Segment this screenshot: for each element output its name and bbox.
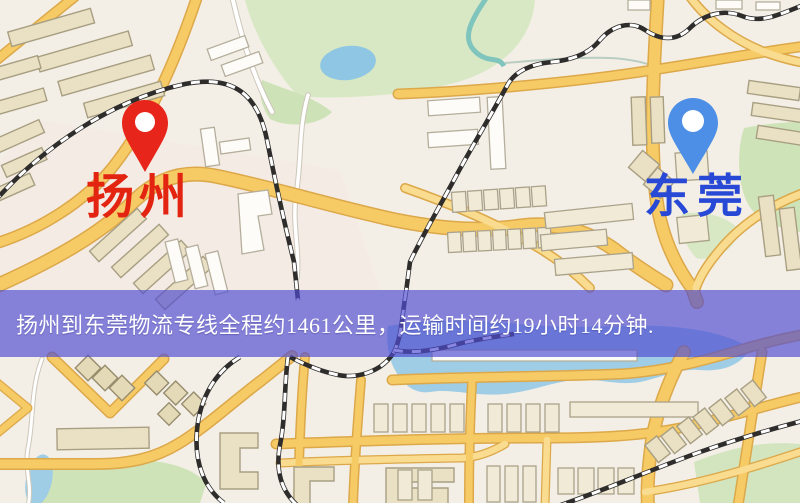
origin-pin-shape[interactable]: [122, 100, 168, 172]
destination-pin-icon[interactable]: [663, 94, 723, 178]
route-info-text: 扬州到东莞物流专线全程约1461公里，运输时间约19小时14分钟.: [0, 308, 654, 340]
destination-pin-shape[interactable]: [668, 98, 718, 174]
destination-city-label: 东莞: [644, 174, 750, 220]
origin-pin-icon[interactable]: [116, 96, 174, 176]
route-info-banner: 扬州到东莞物流专线全程约1461公里，运输时间约19小时14分钟.: [0, 290, 800, 357]
map-canvas[interactable]: [0, 0, 800, 503]
map-viewport[interactable]: 扬州 东莞 扬州到东莞物流专线全程约1461公里，运输时间约19小时14分钟.: [0, 0, 800, 503]
origin-city-label: 扬州: [86, 174, 192, 222]
origin-pin-hole: [135, 112, 155, 132]
destination-pin-hole: [682, 110, 704, 132]
